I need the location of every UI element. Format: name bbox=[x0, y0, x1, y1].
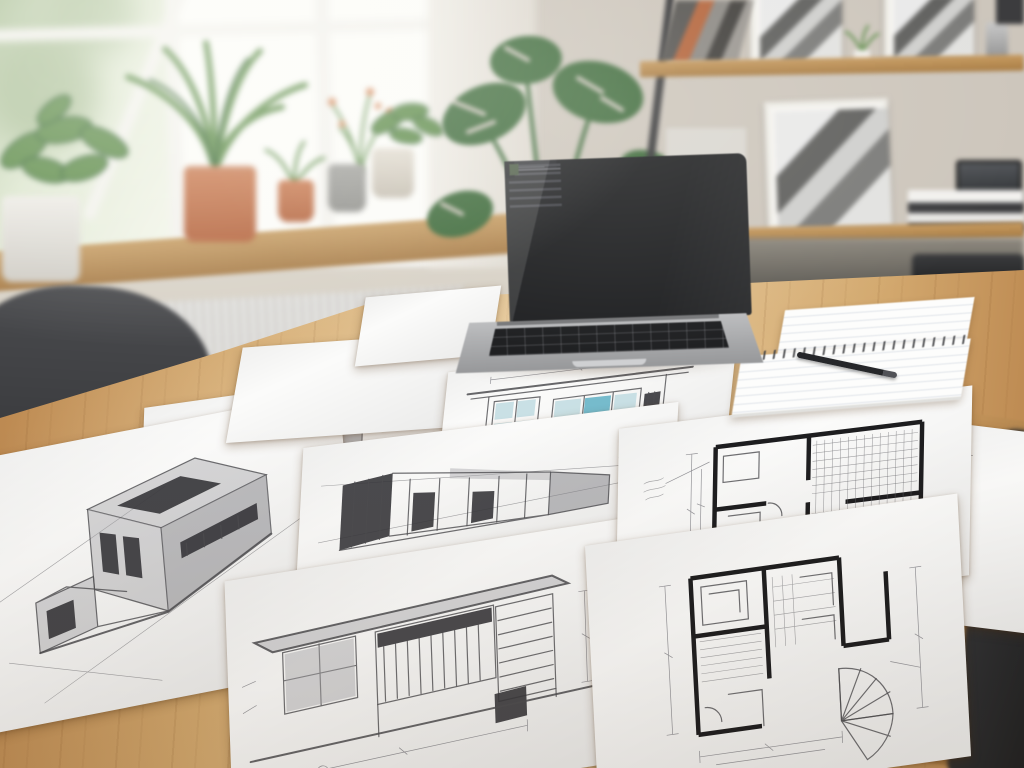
leaning-books bbox=[660, 0, 753, 62]
gray-pot bbox=[328, 164, 366, 212]
studio-scene bbox=[0, 0, 1024, 768]
color-row bbox=[370, 304, 372, 317]
laptop-screen bbox=[504, 153, 752, 323]
grayscale-row bbox=[253, 357, 255, 370]
framed-print bbox=[884, 0, 974, 58]
white-plant-pot bbox=[2, 196, 80, 282]
laptop bbox=[448, 153, 763, 382]
laptop-keyboard bbox=[488, 321, 729, 356]
laptop-front-lip bbox=[572, 359, 646, 368]
bw-photo bbox=[774, 108, 892, 230]
leaning-framed-print bbox=[764, 98, 892, 230]
modeling-app-window bbox=[504, 153, 752, 323]
color-row bbox=[370, 304, 372, 317]
grayscale-row bbox=[253, 357, 255, 370]
color-row bbox=[370, 304, 372, 317]
framed-print bbox=[750, 0, 842, 62]
grayscale-row bbox=[253, 357, 255, 370]
dark-box bbox=[996, 0, 1024, 24]
bw-photo bbox=[894, 0, 974, 58]
asset-strip bbox=[504, 161, 515, 178]
asset-thumbnail bbox=[509, 164, 518, 175]
spiral-stair bbox=[839, 661, 895, 762]
bw-photo bbox=[760, 0, 842, 62]
terracotta-pot bbox=[184, 166, 256, 242]
small-terracotta-pot bbox=[278, 180, 314, 222]
